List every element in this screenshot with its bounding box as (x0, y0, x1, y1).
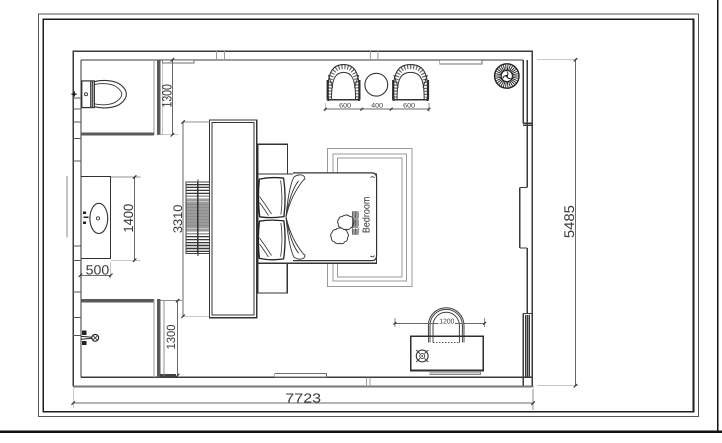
svg-text:1300: 1300 (159, 84, 174, 108)
svg-text:500: 500 (86, 262, 110, 277)
svg-text:Bedroom: Bedroom (362, 197, 373, 234)
svg-text:600: 600 (403, 103, 415, 110)
svg-text:3310: 3310 (171, 205, 185, 234)
svg-text:7723: 7723 (285, 390, 321, 405)
svg-text:400: 400 (371, 103, 383, 110)
svg-text:600: 600 (339, 103, 351, 110)
svg-text:1200: 1200 (439, 319, 454, 326)
svg-text:5485: 5485 (561, 205, 577, 238)
svg-text:1400: 1400 (121, 204, 136, 233)
svg-text:1300: 1300 (164, 324, 178, 349)
